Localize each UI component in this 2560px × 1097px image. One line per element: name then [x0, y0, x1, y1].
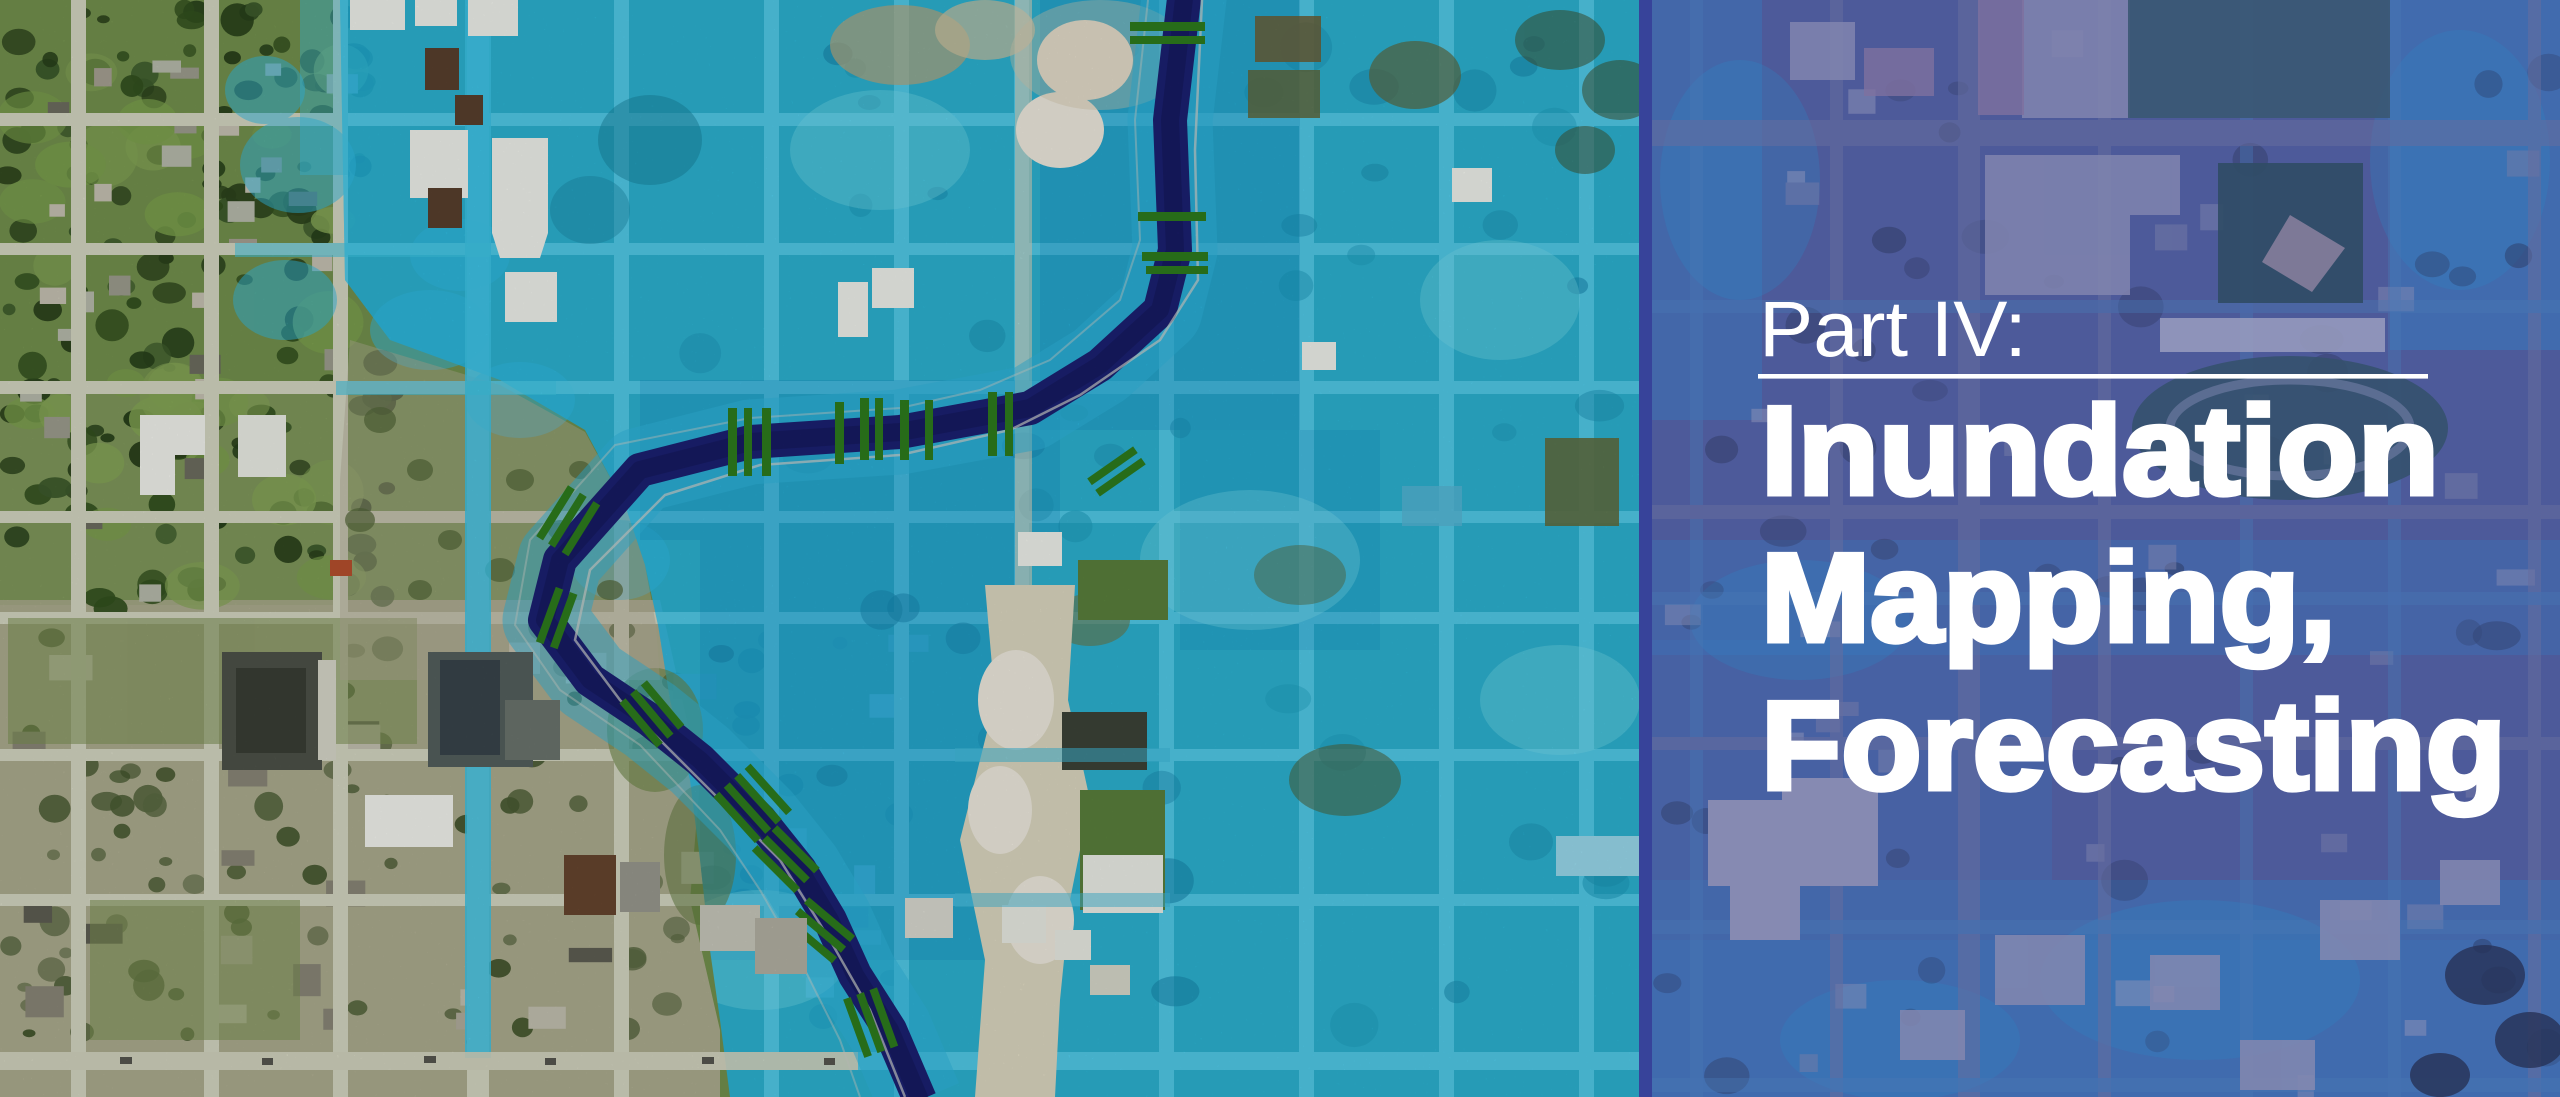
svg-text:Part IV:: Part IV:	[1759, 284, 2027, 373]
svg-text:Forecasting: Forecasting	[1761, 675, 2506, 816]
svg-text:Mapping,: Mapping,	[1761, 527, 2336, 668]
svg-text:Inundation: Inundation	[1761, 380, 2439, 521]
